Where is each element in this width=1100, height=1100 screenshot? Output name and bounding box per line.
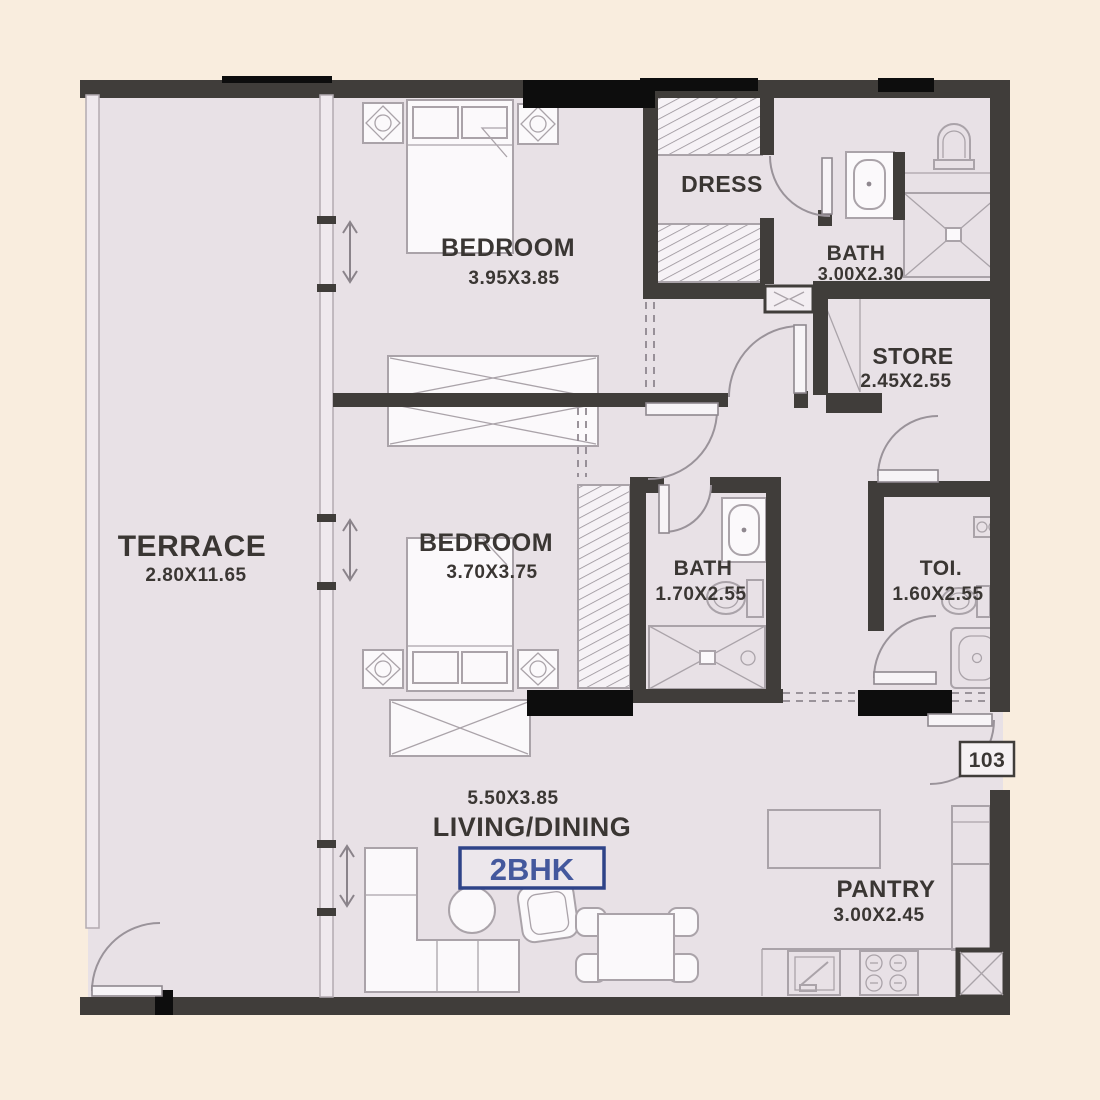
wall-bath2-bottom [630,689,783,703]
armchair-icon [516,880,579,943]
wall-store-left [813,298,828,395]
wall-bath2-right [766,477,781,703]
lintel-black [878,78,934,92]
wardrobe-icon [651,95,762,155]
room-dims-bedroom2: 3.70X3.75 [446,562,537,583]
bed-icon [407,538,513,691]
sink-icon [846,152,894,218]
wall-bath-stub [893,152,905,220]
floor-plan-drawing: TERRACE 2.80X11.65 BEDROOM 3.95X3.85 DRE… [0,0,1100,1100]
tv-unit-icon [390,700,530,756]
room-dims-bath-mid: 1.70X2.55 [655,584,746,605]
room-label-dress: DRESS [681,171,763,197]
nightstand-icon [518,104,558,144]
shaft-black [858,690,952,716]
wall-bedroom1-right [643,95,658,285]
nightstand-icon [518,650,558,688]
room-dims-bath-top: 3.00X2.30 [818,264,905,284]
room-dims-toilet: 1.60X2.55 [892,584,983,605]
room-label-living: LIVING/DINING [433,812,632,842]
wall-dress-bottom [643,283,765,299]
wardrobe-icon [651,224,762,282]
shaft-icon [958,950,1005,997]
nightstand-icon [363,103,403,143]
room-dims-terrace: 2.80X11.65 [145,565,246,586]
wall-bath2-left [630,477,646,703]
room-label-bedroom1: BEDROOM [441,234,575,262]
room-dims-living: 5.50X3.85 [467,788,558,809]
room-label-toilet: TOI. [920,557,962,580]
unit-number-text: 103 [969,749,1006,772]
coffee-table-icon [449,887,495,933]
wall-toilet-top [868,481,1010,497]
duct-icon [765,286,813,312]
wall-toilet-left [868,481,884,631]
lintel-black [222,76,332,83]
unit-type-badge: 2BHK [460,848,604,888]
room-label-pantry: PANTRY [837,876,936,903]
wall-bottom [80,997,1010,1015]
room-label-store: STORE [872,343,953,369]
bed-icon [407,100,513,253]
closet-icon [578,485,630,688]
terrace-slider-wall [320,95,333,997]
room-label-bath-mid: BATH [674,557,733,580]
nightstand-icon [363,650,403,688]
wall-dress-bath [760,218,774,284]
room-label-bedroom2: BEDROOM [419,529,553,557]
unit-type-text: 2BHK [490,852,575,887]
room-dims-pantry: 3.00X2.45 [833,905,924,926]
lintel-black [523,80,655,108]
wall-store-step [826,393,882,413]
terrace-outer-wall [86,95,99,928]
shaft-black [527,690,633,716]
wall-right-upper [990,80,1010,712]
sink-icon [722,498,766,562]
room-dims-store: 2.45X2.55 [860,371,951,392]
floor-plan-page: TERRACE 2.80X11.65 BEDROOM 3.95X3.85 DRE… [0,0,1100,1100]
lintel-black [640,78,758,91]
room-label-bath-top: BATH [827,242,886,265]
room-dims-bedroom1: 3.95X3.85 [468,268,559,289]
unit-number-plate: 103 [960,742,1014,776]
room-label-terrace: TERRACE [118,530,267,563]
wall-dress-bath [760,95,774,155]
